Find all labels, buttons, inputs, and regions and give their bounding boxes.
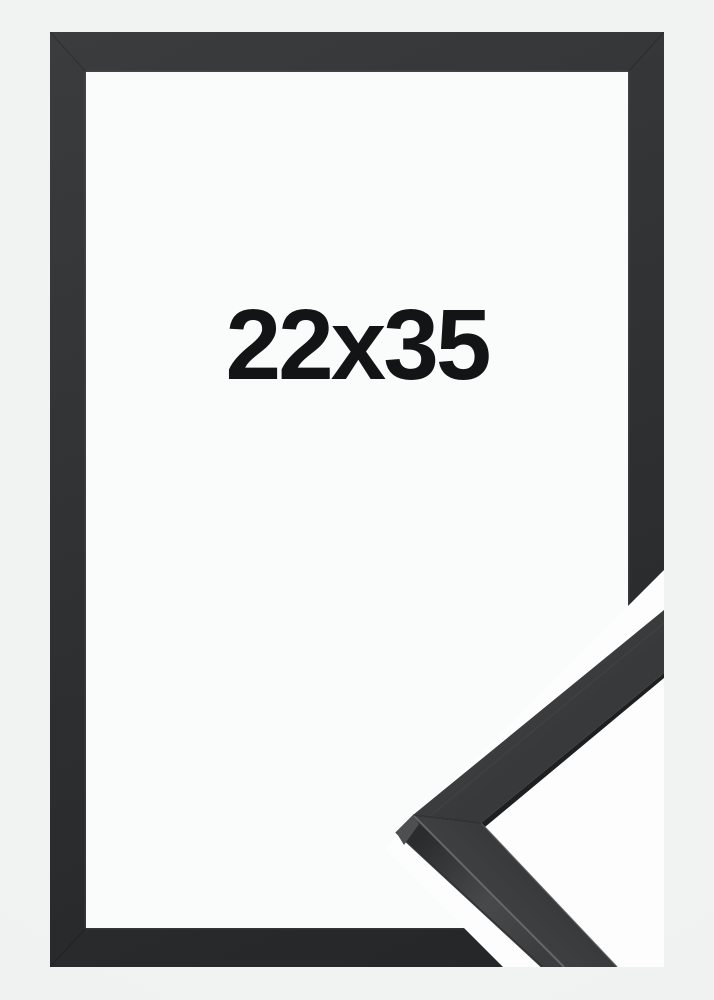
size-label: 22x35 <box>86 295 628 395</box>
frame-opening: 22x35 <box>86 72 628 928</box>
product-image: 22x35 <box>0 0 714 1000</box>
picture-frame: 22x35 <box>50 32 664 967</box>
